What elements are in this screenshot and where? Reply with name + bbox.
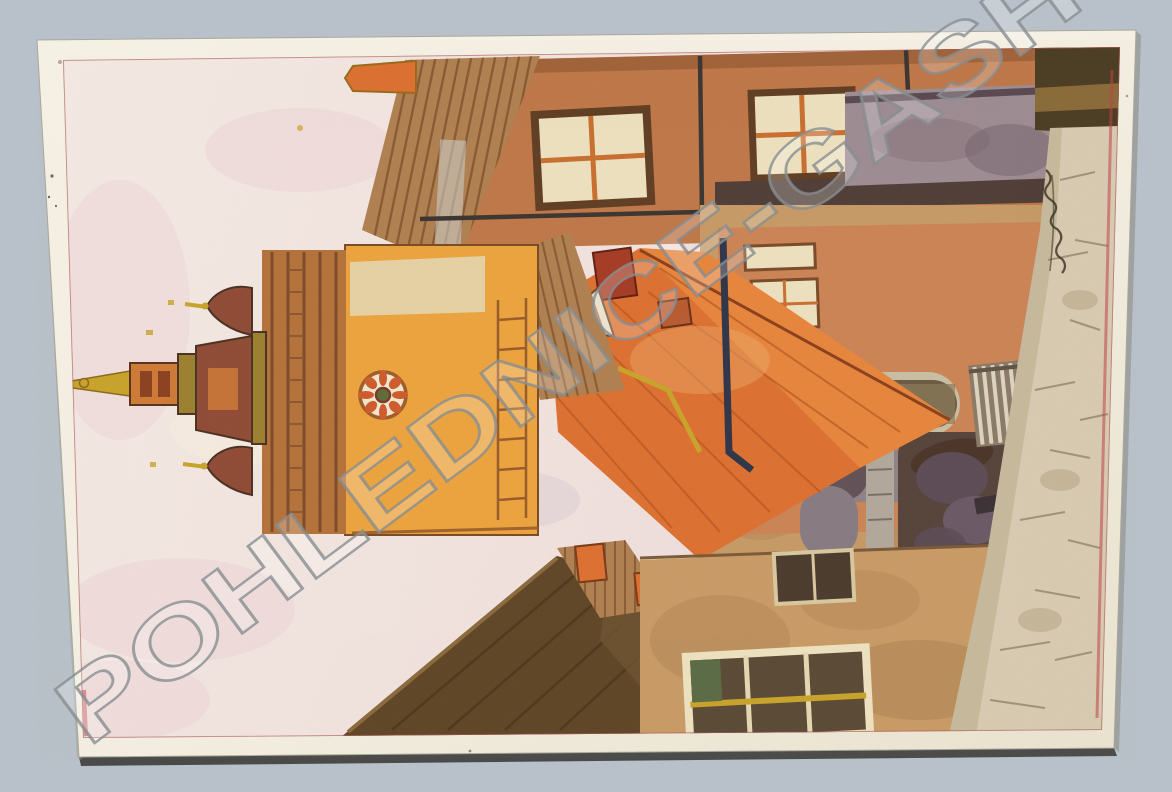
scanned-postcard-photo: POHLEDNICE-GASH: [0, 0, 1172, 792]
postcard-scene: POHLEDNICE-GASH: [0, 0, 1172, 792]
